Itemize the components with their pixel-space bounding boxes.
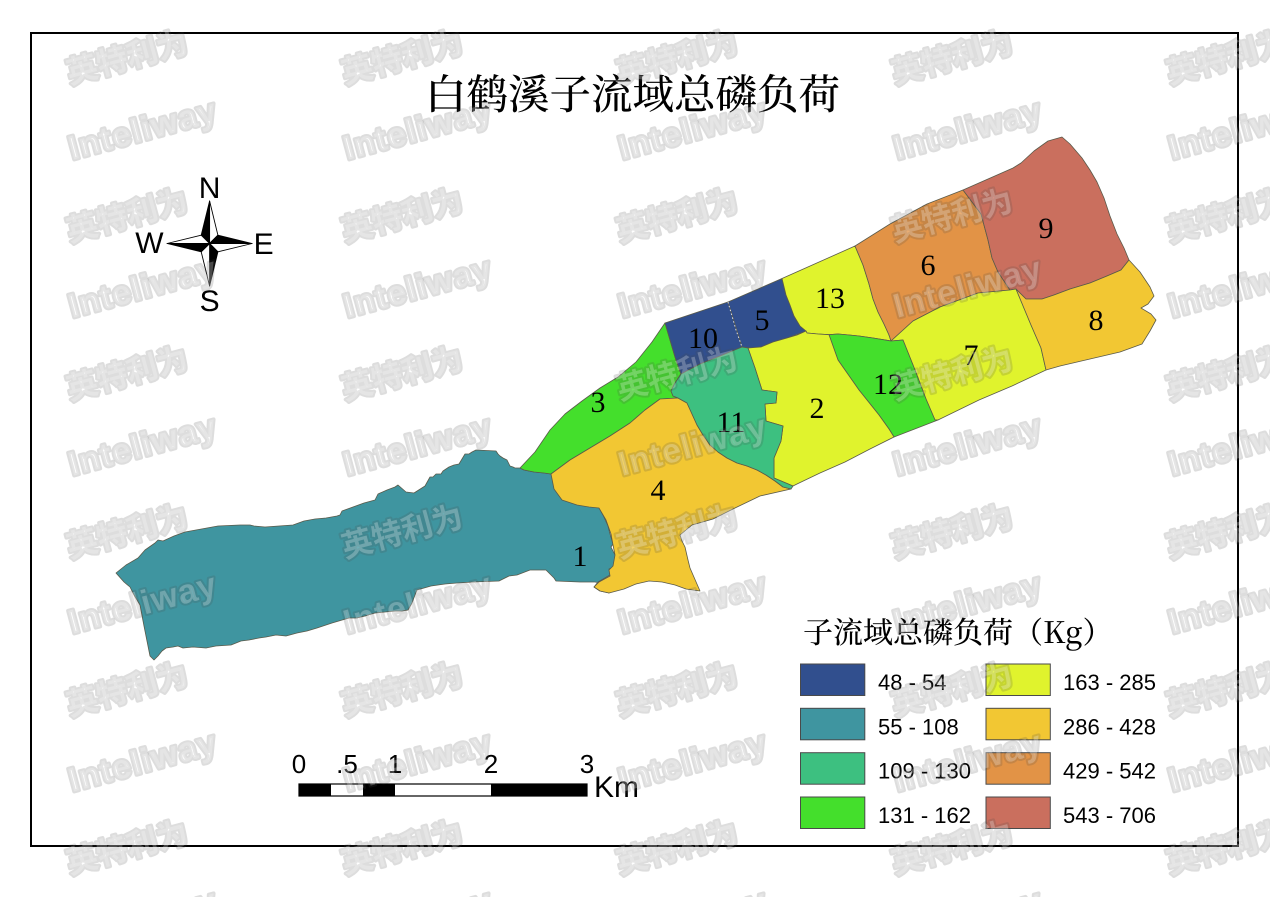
svg-text:3: 3 (580, 749, 594, 779)
svg-text:4: 4 (651, 474, 666, 507)
svg-text:163 - 285: 163 - 285 (1063, 670, 1156, 695)
svg-text:N: N (199, 172, 221, 205)
svg-text:8: 8 (1089, 304, 1104, 337)
svg-text:55 - 108: 55 - 108 (878, 714, 959, 739)
svg-text:W: W (135, 227, 164, 260)
svg-text:2: 2 (810, 392, 825, 425)
svg-text:286 - 428: 286 - 428 (1063, 714, 1156, 739)
svg-text:9: 9 (1039, 212, 1054, 245)
svg-text:543 - 706: 543 - 706 (1063, 803, 1156, 828)
svg-text:5: 5 (755, 304, 770, 337)
svg-text:0: 0 (292, 749, 306, 779)
svg-text:3: 3 (591, 386, 606, 419)
svg-text:429 - 542: 429 - 542 (1063, 759, 1156, 784)
svg-text:E: E (254, 228, 274, 261)
svg-text:131 - 162: 131 - 162 (878, 803, 971, 828)
svg-text:13: 13 (815, 282, 845, 315)
svg-text:1: 1 (573, 540, 588, 573)
